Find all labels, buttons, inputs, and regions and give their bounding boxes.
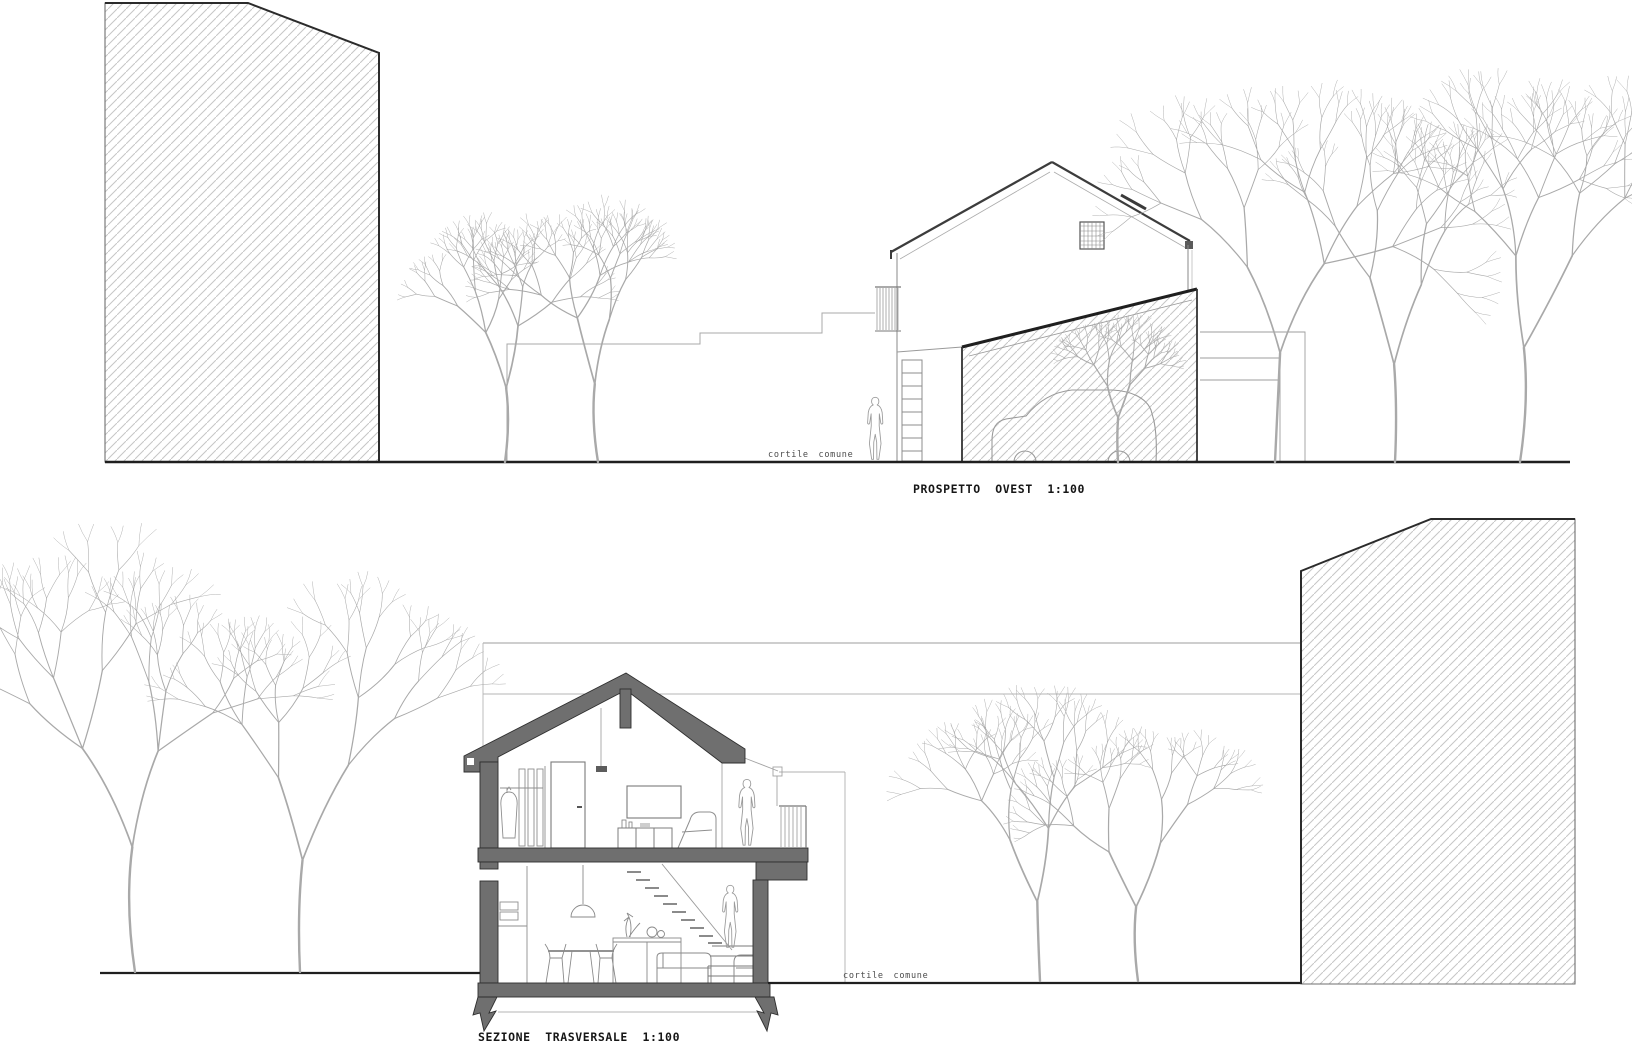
sofa (657, 953, 711, 983)
terrace-railing (779, 806, 806, 848)
foundation-break-left (473, 997, 497, 1031)
tv-screen (627, 786, 681, 818)
courtyard-wall-profile (507, 313, 875, 462)
left-wall-sill (480, 862, 498, 869)
cross-section-drawing: cortile comune SEZIONE TRASVERSALE 1:100 (0, 519, 1575, 1044)
architectural-sheet: cortile comune PROSPETTO OVEST 1:100 (0, 0, 1632, 1050)
trees-cross-section (0, 523, 1263, 981)
wall-ladder (902, 360, 922, 461)
section-poche (464, 673, 808, 1031)
wardrobe (500, 766, 545, 848)
cross-section-title: SEZIONE TRASVERSALE 1:100 (478, 1030, 680, 1044)
sheet-svg: cortile comune PROSPETTO OVEST 1:100 (0, 0, 1632, 1050)
pendant-light-lower (571, 865, 595, 917)
left-wall-lower (480, 881, 498, 983)
courtyard-label: cortile comune (843, 971, 928, 981)
foundation-break-right (755, 997, 778, 1031)
left-wall-upper (480, 762, 498, 848)
roof-section (464, 673, 745, 772)
right-beam (756, 862, 807, 880)
wall-vent-grid (1080, 222, 1104, 249)
person-on-stairs (723, 885, 738, 947)
dining-table-chairs (545, 944, 617, 983)
right-wall-lower (753, 880, 768, 983)
roof-window (1121, 195, 1146, 209)
west-elevation-drawing: cortile comune PROSPETTO OVEST 1:100 (105, 3, 1632, 496)
kitchen-cabinet (498, 866, 527, 983)
house-elevation (875, 162, 1305, 462)
floor-slab (478, 848, 808, 862)
plant (624, 913, 640, 937)
person-upper-floor (739, 779, 755, 845)
house-section (464, 673, 808, 1031)
sideboard (618, 820, 672, 848)
person-figure (868, 397, 883, 459)
ridge-post (620, 689, 631, 728)
foundation-slab (478, 983, 770, 997)
west-elevation-title: PROSPETTO OVEST 1:100 (913, 482, 1085, 496)
neighbour-building-left (105, 3, 379, 462)
garage-block (962, 289, 1197, 462)
courtyard-label: cortile comune (768, 450, 853, 460)
door (551, 762, 585, 848)
gutter (1185, 241, 1193, 249)
pendant-light-upper (596, 708, 607, 772)
neighbour-building-right (1301, 519, 1575, 984)
background-wall-right (1200, 332, 1305, 462)
lounge-chair-upper (678, 812, 716, 848)
kitchen-island (613, 913, 681, 983)
